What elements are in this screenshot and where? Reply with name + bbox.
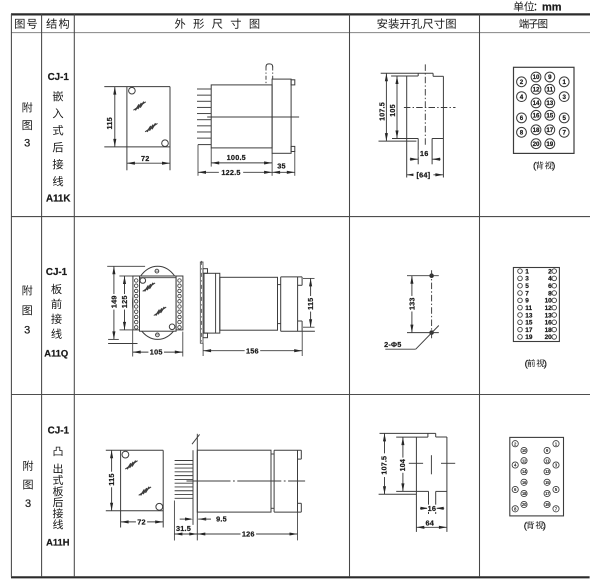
svg-text:104: 104 bbox=[399, 459, 407, 471]
svg-text:19: 19 bbox=[525, 334, 533, 341]
svg-text:4: 4 bbox=[514, 463, 517, 468]
svg-text:9: 9 bbox=[525, 298, 529, 305]
svg-text:18: 18 bbox=[533, 127, 540, 134]
svg-text:12: 12 bbox=[545, 305, 553, 312]
svg-text:72: 72 bbox=[141, 154, 150, 163]
svg-text:100.5: 100.5 bbox=[227, 153, 246, 162]
svg-text:): ) bbox=[552, 161, 555, 172]
svg-text:149: 149 bbox=[109, 295, 118, 308]
svg-text:CJ-1: CJ-1 bbox=[48, 72, 70, 83]
svg-text:9: 9 bbox=[548, 74, 552, 81]
svg-text:5: 5 bbox=[525, 283, 529, 290]
svg-text:18: 18 bbox=[545, 327, 553, 334]
svg-text:35: 35 bbox=[277, 162, 286, 171]
svg-text:CJ-1: CJ-1 bbox=[46, 267, 68, 278]
svg-text:9.5: 9.5 bbox=[216, 515, 227, 524]
svg-text:17: 17 bbox=[525, 327, 533, 334]
svg-text:3: 3 bbox=[24, 324, 30, 336]
svg-text:20: 20 bbox=[533, 141, 540, 148]
svg-text:115: 115 bbox=[105, 117, 114, 129]
svg-text:115: 115 bbox=[306, 298, 315, 310]
svg-text:17: 17 bbox=[546, 127, 553, 134]
svg-text:): ) bbox=[543, 520, 546, 531]
svg-text:13: 13 bbox=[546, 100, 553, 107]
svg-text:31.5: 31.5 bbox=[176, 524, 191, 533]
svg-text:115: 115 bbox=[107, 473, 116, 485]
svg-text:1: 1 bbox=[562, 79, 566, 86]
svg-text:156: 156 bbox=[246, 346, 259, 355]
svg-text:13: 13 bbox=[525, 312, 533, 319]
svg-text:mm: mm bbox=[542, 1, 562, 13]
svg-text:12: 12 bbox=[533, 87, 540, 94]
svg-text:107.5: 107.5 bbox=[381, 456, 389, 475]
svg-text:1: 1 bbox=[555, 441, 558, 446]
svg-text:16: 16 bbox=[545, 320, 553, 327]
svg-text:4: 4 bbox=[520, 94, 524, 101]
svg-text:7: 7 bbox=[555, 506, 558, 511]
svg-text:16: 16 bbox=[428, 504, 437, 513]
svg-text:133: 133 bbox=[407, 297, 416, 310]
svg-text:11: 11 bbox=[547, 87, 554, 94]
svg-text:3: 3 bbox=[24, 138, 30, 150]
svg-text:2: 2 bbox=[520, 79, 524, 86]
svg-text:8: 8 bbox=[548, 290, 552, 297]
svg-text:[64]: [64] bbox=[417, 170, 431, 179]
svg-text:125: 125 bbox=[120, 295, 129, 308]
svg-text:16: 16 bbox=[533, 113, 540, 120]
svg-text:): ) bbox=[544, 358, 547, 369]
svg-text:15: 15 bbox=[546, 113, 553, 120]
svg-text:16: 16 bbox=[420, 149, 429, 158]
svg-text:5: 5 bbox=[555, 487, 558, 492]
svg-text:7: 7 bbox=[562, 130, 566, 137]
svg-text:15: 15 bbox=[525, 320, 533, 327]
svg-text:8: 8 bbox=[514, 506, 517, 511]
svg-text:126: 126 bbox=[242, 530, 255, 539]
svg-text:9: 9 bbox=[546, 448, 549, 453]
svg-text:3: 3 bbox=[25, 498, 31, 510]
svg-text:14: 14 bbox=[533, 100, 540, 107]
svg-text:10: 10 bbox=[545, 298, 553, 305]
svg-text:107.5: 107.5 bbox=[378, 102, 386, 121]
svg-text:122.5: 122.5 bbox=[221, 168, 240, 177]
svg-text:A11K: A11K bbox=[46, 194, 71, 205]
svg-text:3: 3 bbox=[555, 463, 558, 468]
svg-text:20: 20 bbox=[545, 334, 553, 341]
svg-text:19: 19 bbox=[546, 141, 553, 148]
svg-text:8: 8 bbox=[520, 130, 524, 137]
svg-text:3: 3 bbox=[525, 276, 529, 283]
svg-text:2: 2 bbox=[548, 268, 552, 275]
svg-text:2: 2 bbox=[514, 441, 517, 446]
svg-text:64: 64 bbox=[426, 519, 435, 528]
svg-text:6: 6 bbox=[514, 487, 517, 492]
svg-text:5: 5 bbox=[562, 115, 566, 122]
svg-text:A11Q: A11Q bbox=[44, 347, 68, 358]
svg-text:10: 10 bbox=[533, 74, 540, 81]
svg-text:105: 105 bbox=[150, 348, 163, 357]
svg-text:6: 6 bbox=[520, 115, 524, 122]
svg-text:6: 6 bbox=[548, 283, 552, 290]
svg-text:13: 13 bbox=[545, 312, 553, 319]
svg-text:CJ-1: CJ-1 bbox=[48, 425, 70, 436]
svg-text:A11H: A11H bbox=[46, 536, 70, 547]
svg-text:3: 3 bbox=[562, 94, 566, 101]
svg-text:7: 7 bbox=[525, 290, 529, 297]
svg-text:105: 105 bbox=[389, 104, 397, 116]
svg-text:4: 4 bbox=[548, 276, 552, 283]
svg-text:2-Φ5: 2-Φ5 bbox=[384, 340, 401, 349]
svg-text:1: 1 bbox=[525, 268, 529, 275]
svg-text:11: 11 bbox=[525, 305, 532, 312]
svg-text:72: 72 bbox=[137, 518, 146, 527]
